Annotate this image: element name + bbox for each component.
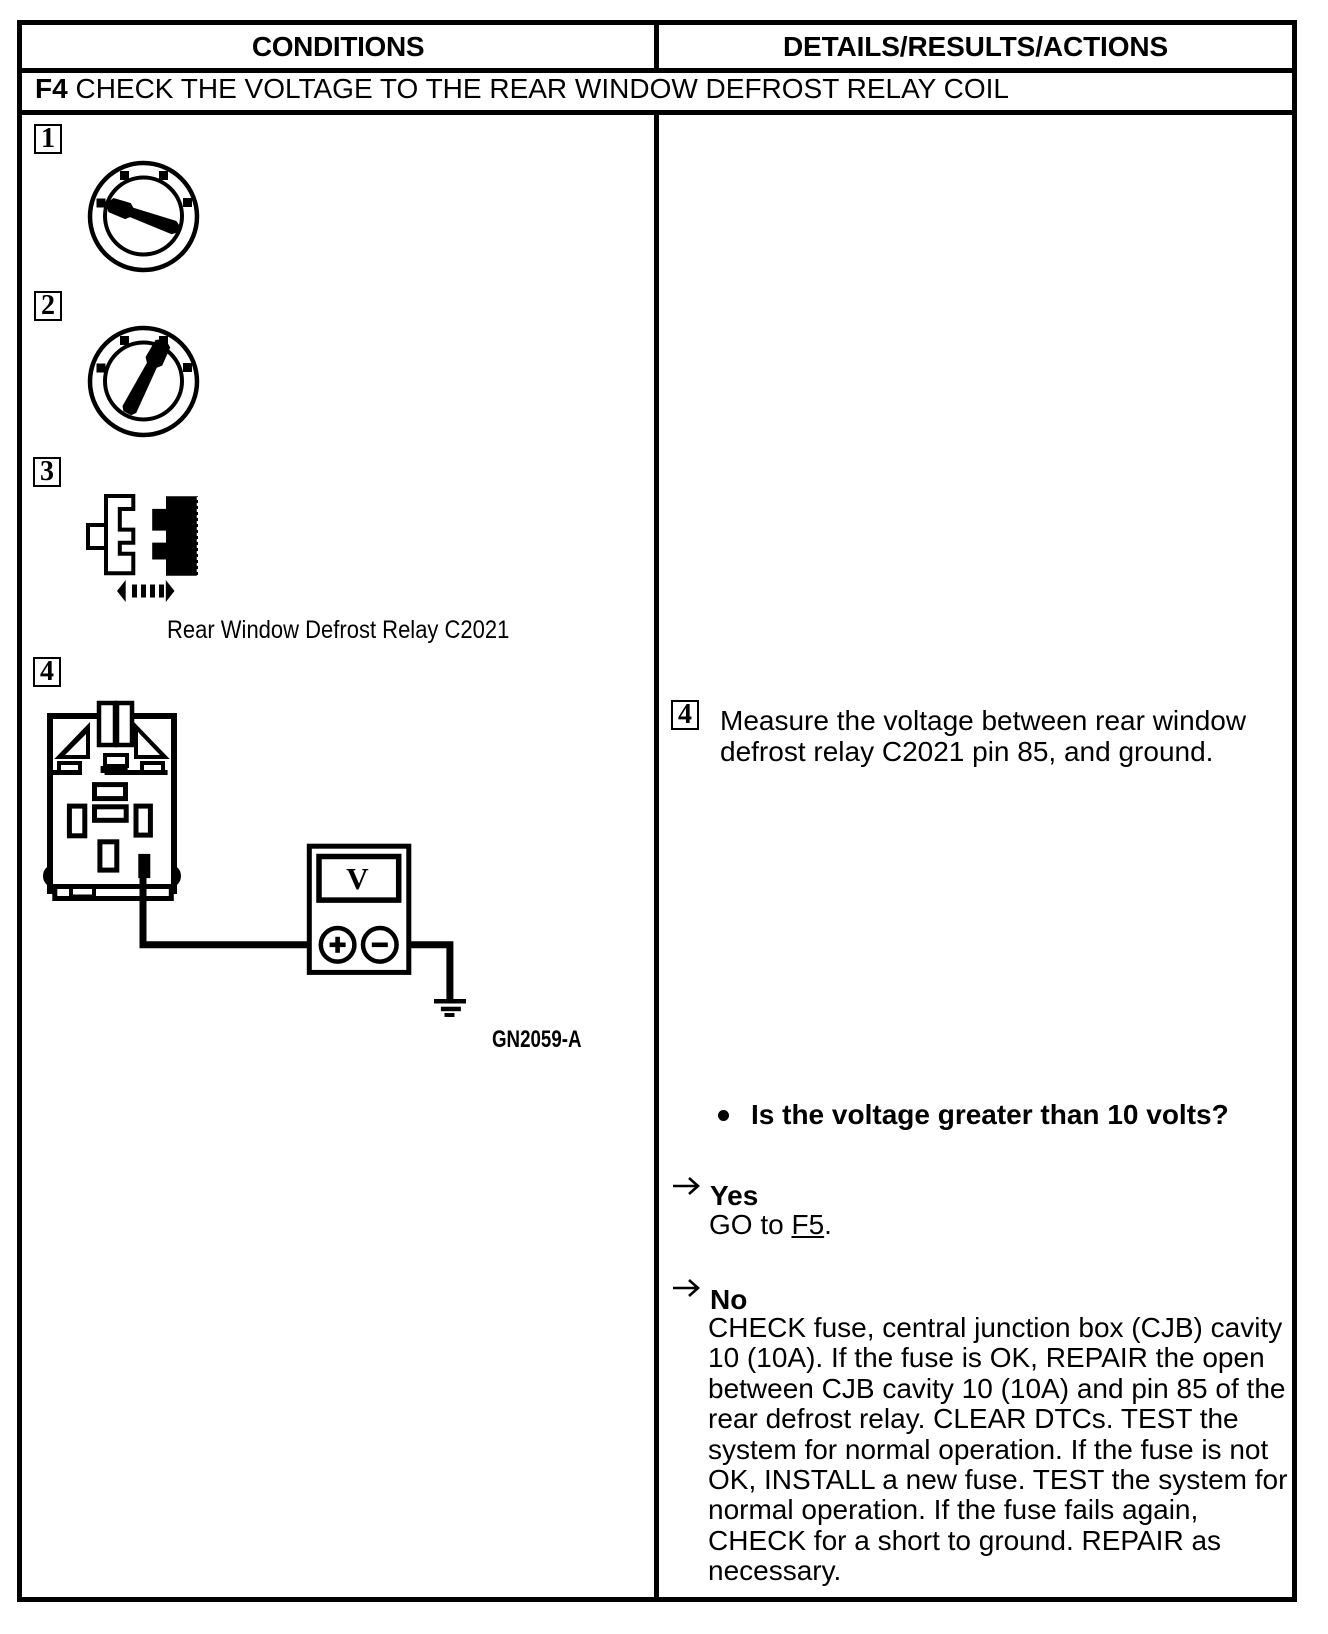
svg-text:V: V <box>346 861 369 896</box>
